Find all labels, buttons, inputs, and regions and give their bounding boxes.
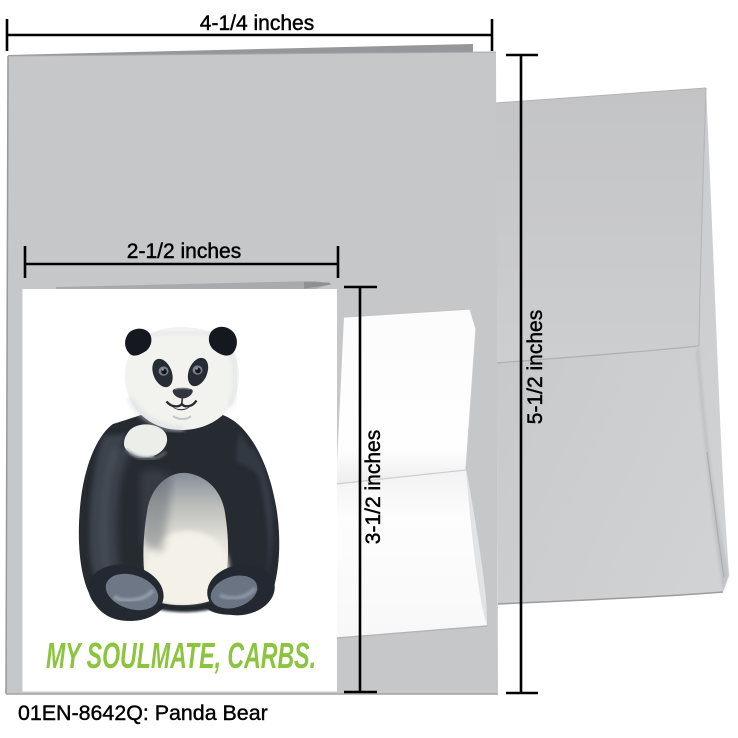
svg-text:MY SOULMATE, CARBS.: MY SOULMATE, CARBS.: [46, 635, 316, 676]
svg-text:5-1/2 inches: 5-1/2 inches: [524, 310, 547, 424]
svg-text:01EN-8642Q: Panda Bear: 01EN-8642Q: Panda Bear: [18, 701, 268, 725]
svg-text:4-1/4 inches: 4-1/4 inches: [200, 12, 314, 35]
svg-text:3-1/2 inches: 3-1/2 inches: [362, 430, 385, 544]
svg-text:2-1/2 inches: 2-1/2 inches: [127, 240, 241, 263]
